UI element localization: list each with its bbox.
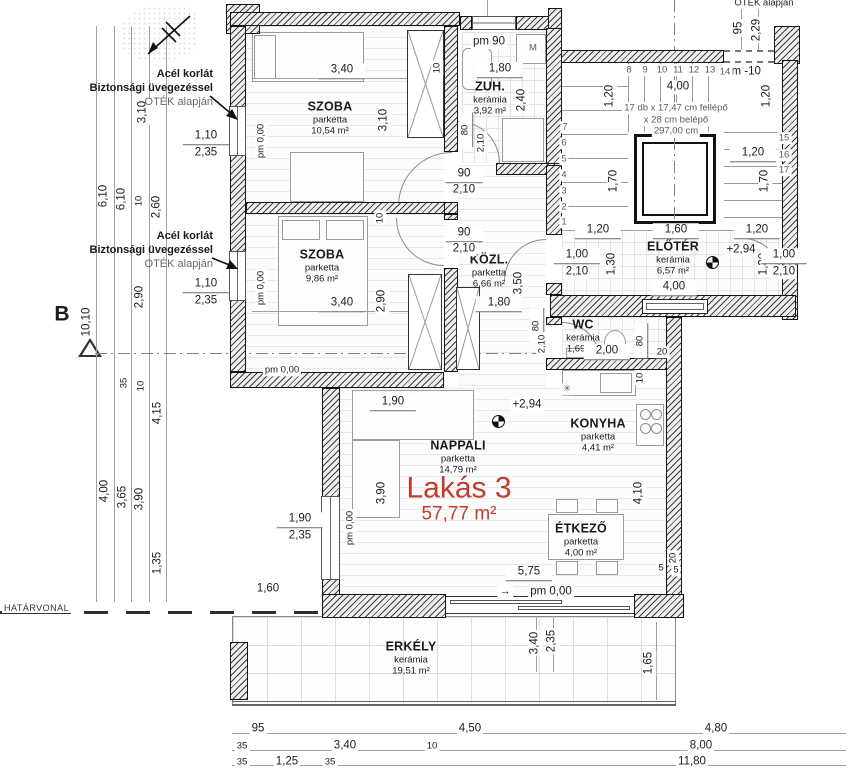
dim-label: 8 [624, 64, 633, 76]
dim-label: 35 [118, 376, 130, 391]
dim-label: 4,80 [703, 722, 729, 736]
dim-label: 1,90 [370, 395, 416, 411]
note-line: OTÉK alapján [55, 258, 213, 272]
dim-label: x 28 cm belépő [642, 114, 710, 126]
dim-label: 6,10 [115, 186, 129, 212]
unit-area: 57,77 m² [406, 504, 511, 524]
dim-label: 1 [559, 216, 568, 228]
dim-label: pm 90 [471, 35, 507, 49]
railing-note-top: Acél korlát Biztonsági üvegezéssel OTÉK … [55, 68, 213, 109]
dim-label: 2,10 [564, 265, 590, 279]
dim-label: pm 0,00 [263, 364, 301, 376]
dim-label: 1,00 [761, 248, 807, 264]
dim-label: 2 [559, 201, 568, 213]
dim-label: 297,00 cm [652, 125, 700, 137]
dim-label: 1,60 [255, 582, 281, 596]
dim-label: 3,50 [512, 270, 526, 296]
dimension-layer: 3,106,106,10102,602,9010,10B35104,154,00… [0, 0, 848, 768]
north-arrow-icon [122, 6, 202, 64]
dim-label: 1,10 [183, 277, 229, 293]
dim-label: 3,40 [332, 739, 358, 753]
dim-label: 1,20 [730, 146, 776, 162]
dim-label: OTÉK alapján [732, 0, 795, 9]
dim-label: 1,10 [183, 129, 229, 145]
dim-label: 2,35 [287, 529, 313, 543]
dim-label: 1,90 [277, 512, 323, 528]
dim-label: 1,80 [477, 62, 523, 78]
dim-label: 90 [446, 226, 483, 242]
dim-label: 2,29 [750, 17, 764, 43]
dim-label: 3,40 [319, 63, 365, 79]
dim-label: 8,00 [688, 739, 714, 753]
dim-label: 14 [718, 66, 733, 78]
dim-label: 10 [425, 740, 440, 752]
dim-label: 2,90 [375, 288, 389, 314]
dim-label: pm 0,00 [344, 509, 356, 547]
dim-label: 2,90 [133, 284, 147, 310]
boundary-label: HATÁRVONAL [2, 603, 71, 614]
dim-label: 12 [687, 64, 702, 76]
dim-label: 6,10 [97, 183, 111, 209]
note-line: OTÉK alapján [55, 96, 213, 110]
dim-label: 5 [559, 153, 568, 165]
dim-label: 2,60 [150, 194, 164, 220]
dim-label: 1,20 [603, 83, 617, 109]
note-line: Acél korlát [55, 230, 213, 244]
dim-label: 4 [559, 169, 568, 181]
dim-label: 3,10 [377, 107, 391, 133]
dim-label: 35 [235, 740, 250, 752]
dim-label: 1,35 [151, 550, 165, 576]
dim-label: 1,20 [575, 223, 621, 239]
dim-label: 7 [560, 121, 569, 133]
dim-label: 17 [777, 164, 792, 176]
dim-label: 10 [431, 61, 443, 76]
dim-label: 3 [559, 185, 568, 197]
dim-label: 10 [135, 379, 147, 394]
dim-label: 1,60 [653, 223, 699, 239]
dim-label: 1,70 [758, 168, 772, 194]
dim-label: pm 0,00 [255, 269, 267, 307]
dim-label: 2,35 [193, 146, 219, 160]
dim-label: 3,90 [133, 486, 147, 512]
dim-label: 1,70 [607, 168, 621, 194]
note-line: Biztonsági üvegezéssel [55, 244, 213, 258]
dim-label: 9 [640, 64, 649, 76]
dim-label: 5 [671, 564, 680, 576]
dim-label: 4,00 [98, 478, 112, 504]
dim-label: 1,20 [760, 83, 774, 109]
dim-label: 4,10 [632, 480, 646, 506]
dim-label: 4,00 [665, 80, 691, 94]
dim-label: 5 [656, 562, 665, 574]
dim-label: ✳ [561, 383, 573, 395]
dim-label: 5,75 [506, 565, 552, 581]
dim-label: 20 [655, 346, 670, 358]
dim-label: 2,10 [451, 183, 477, 197]
floor-plan: Acél korlát Biztonsági üvegezéssel OTÉK … [0, 0, 848, 768]
unit-label: Lakás 3 57,77 m² [406, 472, 511, 523]
dim-label: 1,25 [274, 755, 300, 768]
dim-label: 15 [777, 132, 792, 144]
dim-label: 4,00 [651, 280, 697, 296]
dim-label: 10 [374, 211, 386, 226]
dim-label: 2,40 [515, 87, 529, 113]
dim-label: 10 [634, 371, 646, 386]
dim-label: 10,10 [80, 306, 94, 339]
dim-label: 80 [634, 324, 648, 359]
dim-label: 1,00 [554, 248, 600, 264]
dim-label: 2,10 [771, 265, 797, 279]
dim-label: 2,00 [584, 344, 630, 360]
dim-label: 11,80 [676, 755, 708, 768]
dim-label: 35 [235, 756, 250, 768]
note-arrow [210, 252, 246, 278]
dim-label: 6 [559, 137, 568, 149]
note-line: Biztonsági üvegezéssel [55, 82, 213, 96]
dim-label: 13 [703, 64, 718, 76]
unit-name: Lakás 3 [406, 472, 511, 504]
dim-label: 35 [323, 756, 338, 768]
dim-label: 11 [671, 64, 685, 76]
dim-label: 80 [459, 113, 473, 148]
dim-label: 20 [667, 551, 679, 566]
dim-label: 17 db x 17,47 cm fellépő [622, 102, 730, 114]
dim-label: 2,35 [193, 294, 219, 308]
dim-label: pm 0,00 [255, 122, 267, 160]
railing-note-mid: Acél korlát Biztonsági üvegezéssel OTÉK … [55, 230, 213, 271]
dim-label: 3,40 [319, 296, 365, 312]
dim-label: 10 [655, 64, 670, 76]
dim-label: 3,65 [116, 484, 130, 510]
dim-label: 95 [250, 722, 267, 736]
dim-label: 2,35 [545, 628, 559, 654]
dim-label: pm 0,00 [528, 585, 574, 599]
dim-label: 4,50 [457, 722, 483, 736]
dim-label: B [52, 303, 71, 326]
dim-label: 3,90 [375, 480, 389, 506]
dim-label: +2,94 [510, 398, 543, 412]
note-line: Acél korlát [55, 68, 213, 82]
dim-label: +2,94 [724, 243, 757, 257]
dim-label: 1,80 [476, 296, 522, 312]
dim-label: M [527, 42, 539, 54]
dim-label: 2,10 [536, 333, 548, 356]
dim-label: 3,40 [528, 630, 542, 656]
dim-label: 1,30 [605, 251, 619, 277]
dim-label: 90 [446, 167, 483, 183]
dim-label: 2,10 [451, 242, 477, 256]
dim-label: 95 [732, 20, 746, 37]
dim-label: 10 [133, 194, 145, 209]
dim-label: 16 [777, 149, 792, 161]
dim-label: → [497, 585, 513, 599]
dim-label: 1,65 [642, 650, 656, 676]
dim-label: 4,15 [151, 400, 165, 426]
dim-label: 2,10 [475, 132, 487, 155]
dim-label: 1,20 [734, 223, 780, 239]
